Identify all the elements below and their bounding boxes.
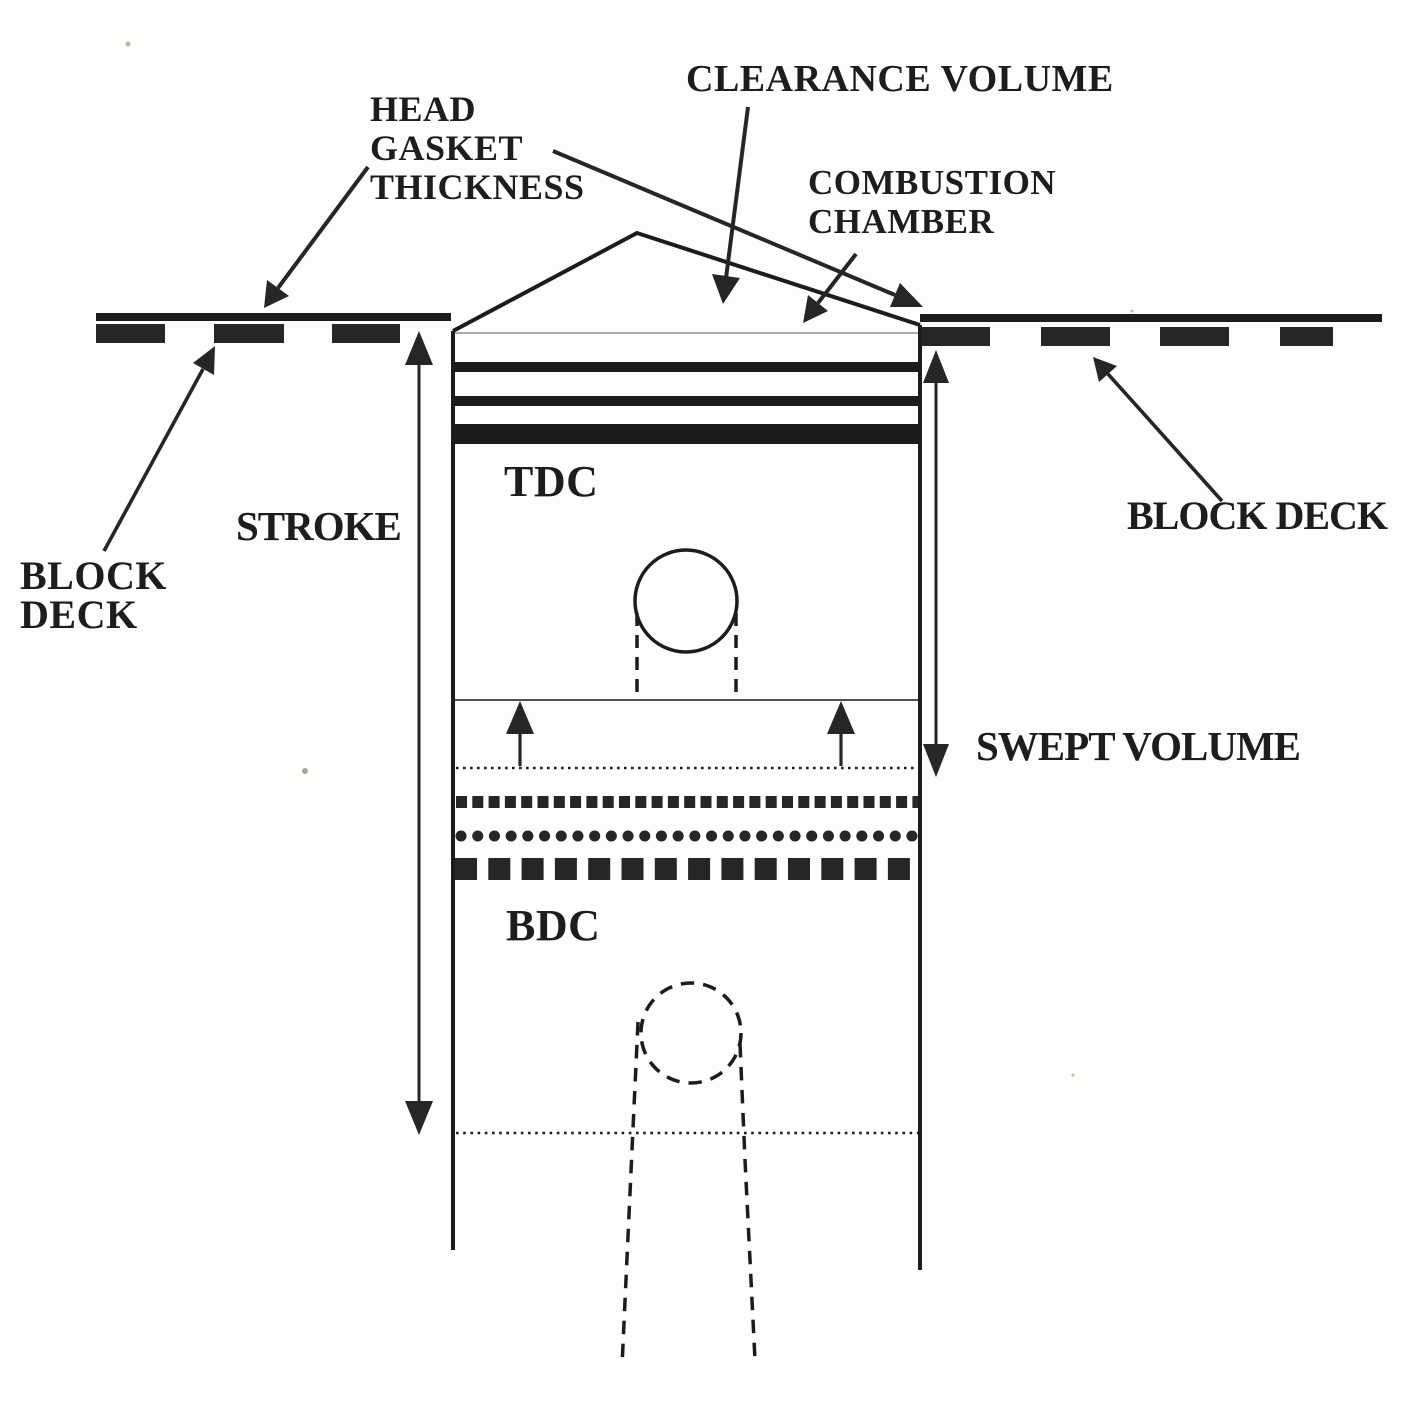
- deck-dash: [1280, 327, 1333, 346]
- engine-cylinder-diagram: CLEARANCE VOLUME HEAD GASKET THICKNESS C…: [0, 0, 1425, 1408]
- combustion-chamber-label: COMBUSTION CHAMBER: [808, 163, 1056, 241]
- block-deck-right-label: BLOCK DECK: [1127, 496, 1387, 536]
- head-gasket-label-line1: HEAD: [370, 90, 585, 129]
- up-arrow-left-head: [506, 701, 534, 734]
- up-arrow-left: [506, 701, 534, 766]
- block-deck-right-line: [1108, 374, 1222, 501]
- piston-ring-3: [455, 424, 918, 444]
- block-deck-left: [96, 313, 451, 343]
- swept-arrow-head-top: [923, 350, 949, 383]
- combustion-chamber-label-line2: CHAMBER: [808, 202, 1056, 241]
- swept-arrow-head-bottom: [923, 744, 949, 777]
- head-gasket-left-line: [278, 167, 368, 288]
- scan-speckle: [1131, 310, 1134, 313]
- wrist-pin-tdc: [635, 550, 737, 652]
- up-arrow-right: [827, 701, 855, 766]
- tdc-label: TDC: [504, 460, 598, 504]
- clearance-volume-pointer-arrow: [712, 107, 748, 304]
- piston-ring-1: [455, 362, 918, 372]
- block-deck-left-label-line1: BLOCK: [20, 556, 167, 595]
- deck-surface-line-right: [920, 314, 1382, 322]
- piston-ring-2: [455, 396, 918, 406]
- deck-dash: [1041, 327, 1110, 346]
- bdc-label: BDC: [506, 904, 600, 948]
- stroke-dimension-arrow: [405, 331, 433, 1135]
- head-gasket-label-line3: THICKNESS: [370, 168, 585, 207]
- combustion-pointer-head: [803, 295, 828, 323]
- head-gasket-left-head: [264, 280, 289, 308]
- swept-volume-label: SWEPT VOLUME: [976, 726, 1300, 767]
- combustion-chamber-label-line1: COMBUSTION: [808, 163, 1056, 202]
- stroke-label: STROKE: [236, 506, 401, 547]
- block-deck-right: [920, 314, 1382, 346]
- deck-surface-line-left: [96, 313, 451, 321]
- stroke-arrow-head-bottom: [405, 1101, 433, 1135]
- deck-dash: [96, 324, 165, 343]
- stroke-arrow-head-top: [405, 331, 433, 365]
- piston-rings-tdc: [455, 362, 918, 444]
- up-arrow-right-head: [827, 701, 855, 734]
- connecting-rod-bdc-left: [622, 1022, 638, 1366]
- combustion-pointer-line: [818, 254, 856, 303]
- deck-dash: [214, 324, 284, 343]
- head-gasket-label-line2: GASKET: [370, 129, 585, 168]
- head-gasket-pointer-arrow-left: [264, 167, 368, 308]
- block-deck-left-line: [104, 369, 203, 551]
- block-deck-left-pointer-arrow: [104, 346, 215, 551]
- clearance-pointer-line: [726, 107, 748, 278]
- block-deck-left-label-line2: DECK: [20, 595, 167, 634]
- deck-dash: [920, 327, 990, 346]
- clearance-pointer-head: [712, 274, 740, 304]
- wrist-pin-bdc: [641, 983, 741, 1083]
- scan-speckle: [1071, 1073, 1074, 1076]
- scan-speckle: [126, 42, 131, 47]
- block-deck-left-label: BLOCK DECK: [20, 556, 167, 634]
- clearance-volume-label: CLEARANCE VOLUME: [686, 60, 1114, 98]
- deck-dash: [332, 324, 400, 343]
- scan-speckle: [302, 768, 308, 774]
- deck-dash: [1160, 327, 1229, 346]
- diagram-canvas: [0, 0, 1425, 1408]
- piston-crown-roof: [453, 233, 920, 331]
- connecting-rod-bdc-right: [740, 1044, 755, 1360]
- swept-volume-dimension-arrow: [923, 350, 949, 777]
- block-deck-right-pointer-arrow: [1093, 357, 1222, 501]
- head-gasket-thickness-label: HEAD GASKET THICKNESS: [370, 90, 585, 207]
